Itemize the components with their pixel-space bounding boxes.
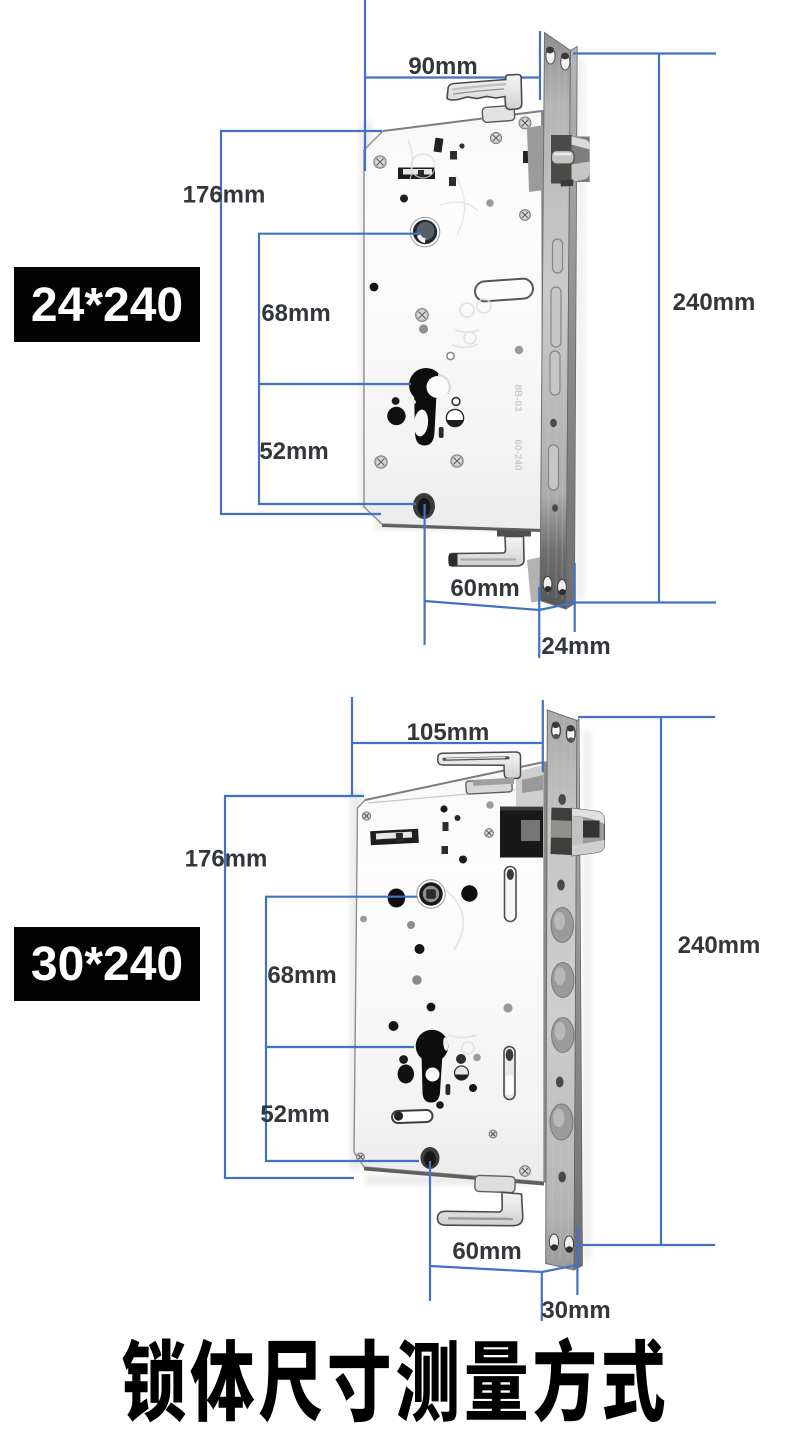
svg-text:60mm: 60mm — [452, 1238, 521, 1265]
svg-text:24*240: 24*240 — [31, 279, 183, 332]
svg-text:176mm: 176mm — [183, 182, 266, 209]
svg-text:24mm: 24mm — [541, 633, 610, 660]
svg-text:60mm: 60mm — [450, 575, 519, 602]
svg-text:68mm: 68mm — [267, 962, 336, 989]
svg-text:30*240: 30*240 — [31, 938, 183, 991]
svg-text:90mm: 90mm — [408, 53, 477, 80]
svg-text:52mm: 52mm — [259, 438, 328, 465]
svg-text:8B-03: 8B-03 — [512, 384, 523, 412]
svg-text:240mm: 240mm — [678, 932, 761, 959]
svg-text:105mm: 105mm — [407, 719, 490, 746]
svg-text:240mm: 240mm — [673, 289, 756, 316]
svg-text:52mm: 52mm — [260, 1101, 329, 1128]
svg-text:176mm: 176mm — [185, 846, 268, 873]
svg-text:68mm: 68mm — [261, 300, 330, 327]
svg-text:30mm: 30mm — [541, 1297, 610, 1324]
svg-text:60-240: 60-240 — [512, 439, 523, 471]
